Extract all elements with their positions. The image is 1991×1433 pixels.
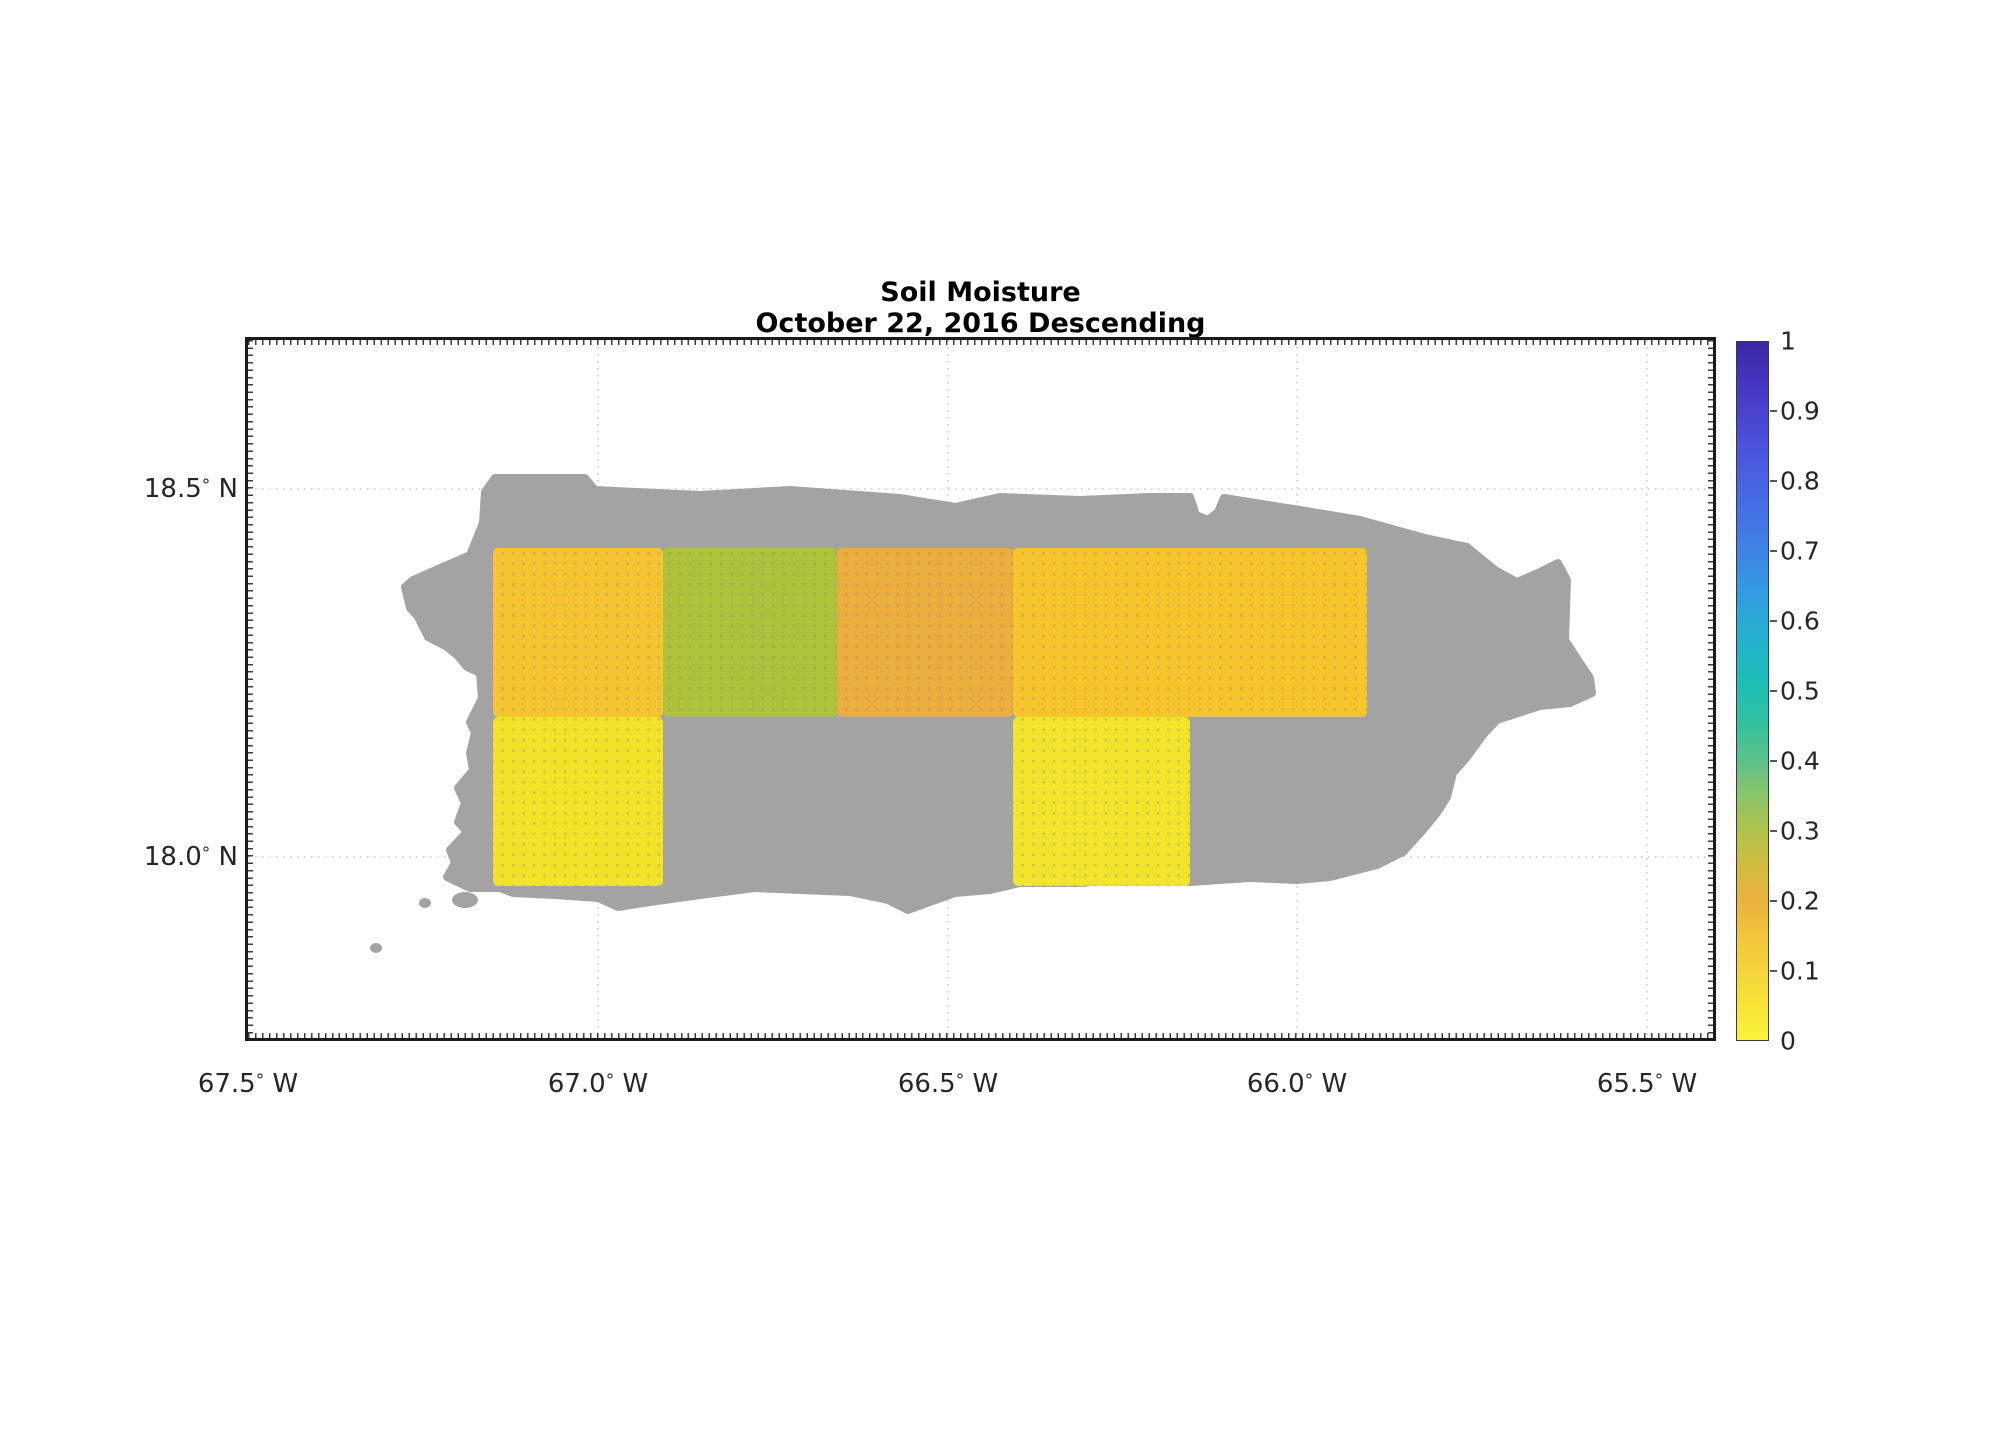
chart-title: Soil Moisture October 22, 2016 Descendin…	[248, 277, 1713, 339]
colorbar-tick-mark	[1770, 830, 1777, 832]
colorbar-tick-mark	[1770, 480, 1777, 482]
figure-canvas: Soil Moisture October 22, 2016 Descendin…	[0, 0, 1991, 1433]
colorbar-tick-label: 0.3	[1780, 817, 1820, 846]
colorbar-tick-label: 0.6	[1780, 607, 1820, 636]
y-tick-label: 18.0° N	[144, 842, 238, 872]
x-tick-label: 66.0° W	[1247, 1069, 1347, 1099]
x-tick-label: 67.5° W	[198, 1069, 298, 1099]
chart-title-line1: Soil Moisture	[248, 277, 1713, 308]
colorbar-tick-mark	[1770, 970, 1777, 972]
colorbar	[1736, 341, 1769, 1041]
colorbar-tick-mark	[1770, 900, 1777, 902]
y-tick-label: 18.5° N	[144, 474, 238, 504]
colorbar-tick-mark	[1770, 690, 1777, 692]
chart-title-line2: October 22, 2016 Descending	[248, 308, 1713, 339]
x-tick-label: 66.5° W	[898, 1069, 998, 1099]
colorbar-tick-label: 0.2	[1780, 887, 1820, 916]
map-frame	[245, 337, 1716, 1041]
colorbar-tick-mark	[1770, 760, 1777, 762]
colorbar-tick-label: 0.4	[1780, 747, 1820, 776]
colorbar-tick-label: 0.7	[1780, 537, 1820, 566]
colorbar-tick-label: 0.1	[1780, 957, 1820, 986]
colorbar-tick-mark	[1770, 410, 1777, 412]
colorbar-tick-label: 0.8	[1780, 467, 1820, 496]
colorbar-tick-mark	[1770, 550, 1777, 552]
colorbar-tick-label: 0	[1780, 1027, 1796, 1056]
x-tick-label: 67.0° W	[548, 1069, 648, 1099]
colorbar-tick-label: 0.9	[1780, 397, 1820, 426]
map-plot-area	[248, 340, 1713, 1038]
colorbar-tick-label: 0.5	[1780, 677, 1820, 706]
colorbar-tick-mark	[1770, 620, 1777, 622]
x-tick-label: 65.5° W	[1597, 1069, 1697, 1099]
colorbar-tick-label: 1	[1780, 327, 1796, 356]
